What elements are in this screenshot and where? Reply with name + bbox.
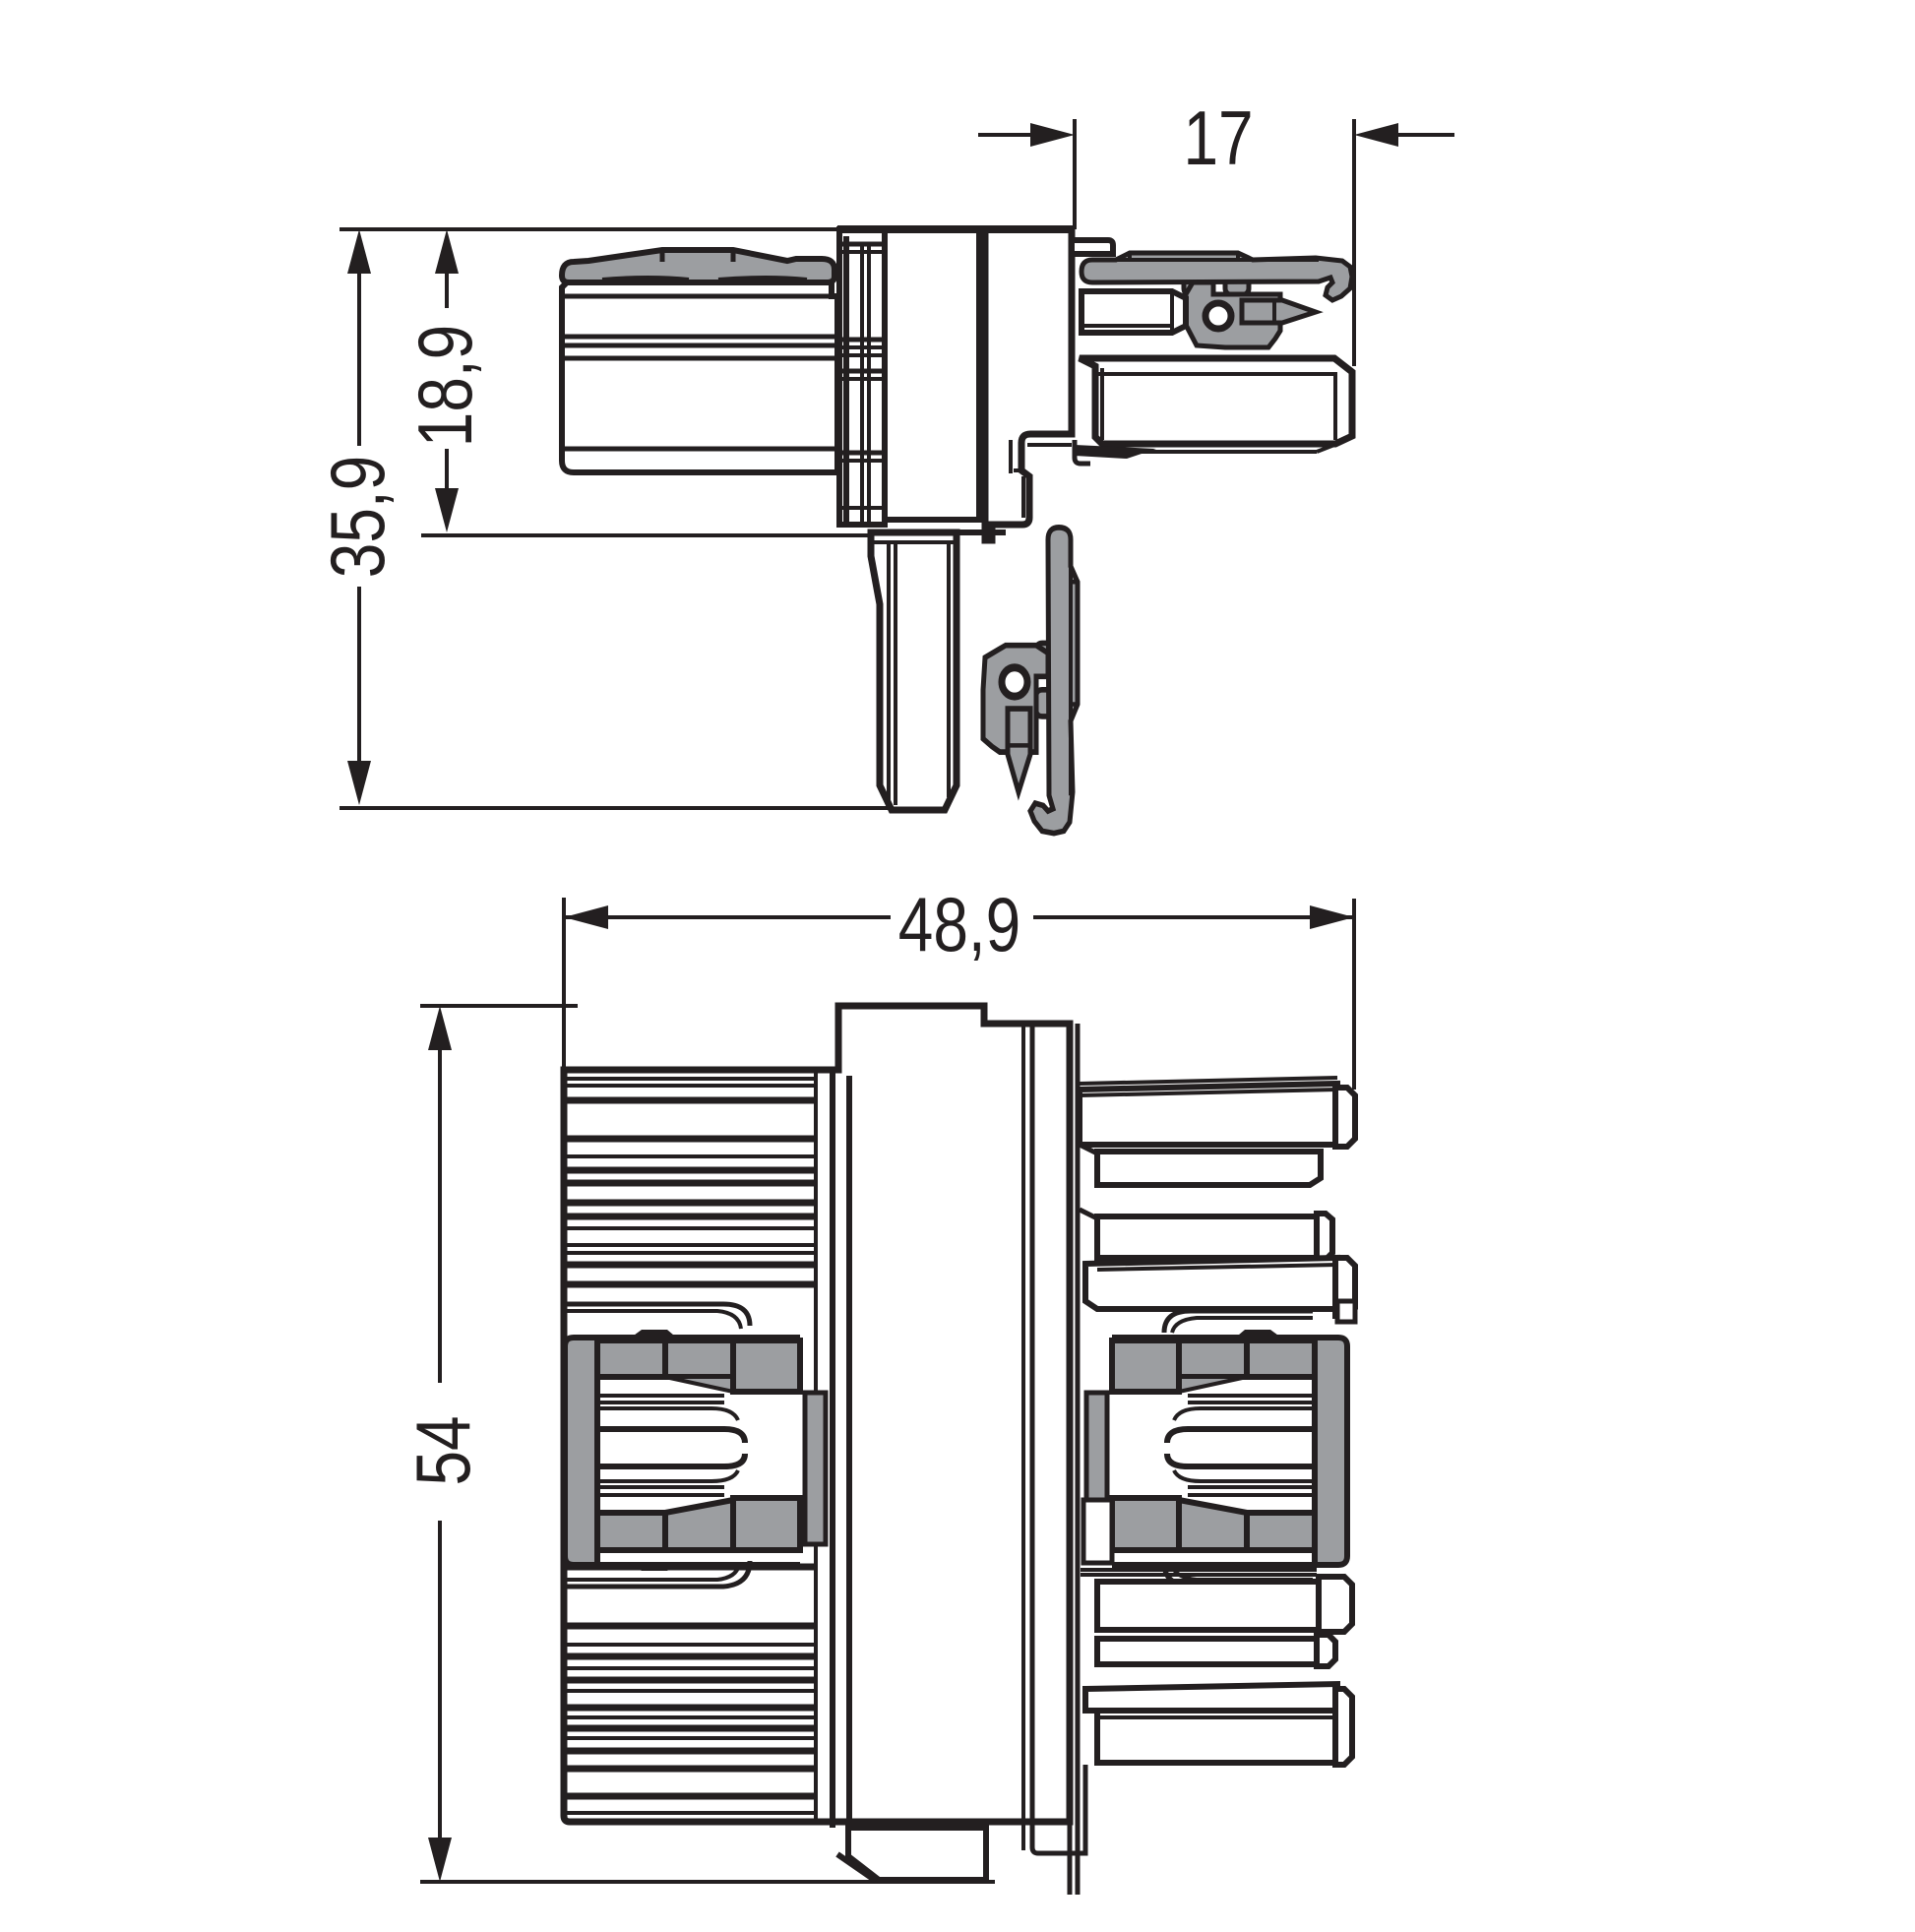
svg-text:54: 54	[401, 1415, 486, 1485]
svg-text:18,9: 18,9	[402, 325, 488, 447]
svg-text:35,9: 35,9	[315, 456, 401, 578]
svg-text:17: 17	[1183, 95, 1253, 181]
svg-text:48,9: 48,9	[898, 882, 1020, 967]
